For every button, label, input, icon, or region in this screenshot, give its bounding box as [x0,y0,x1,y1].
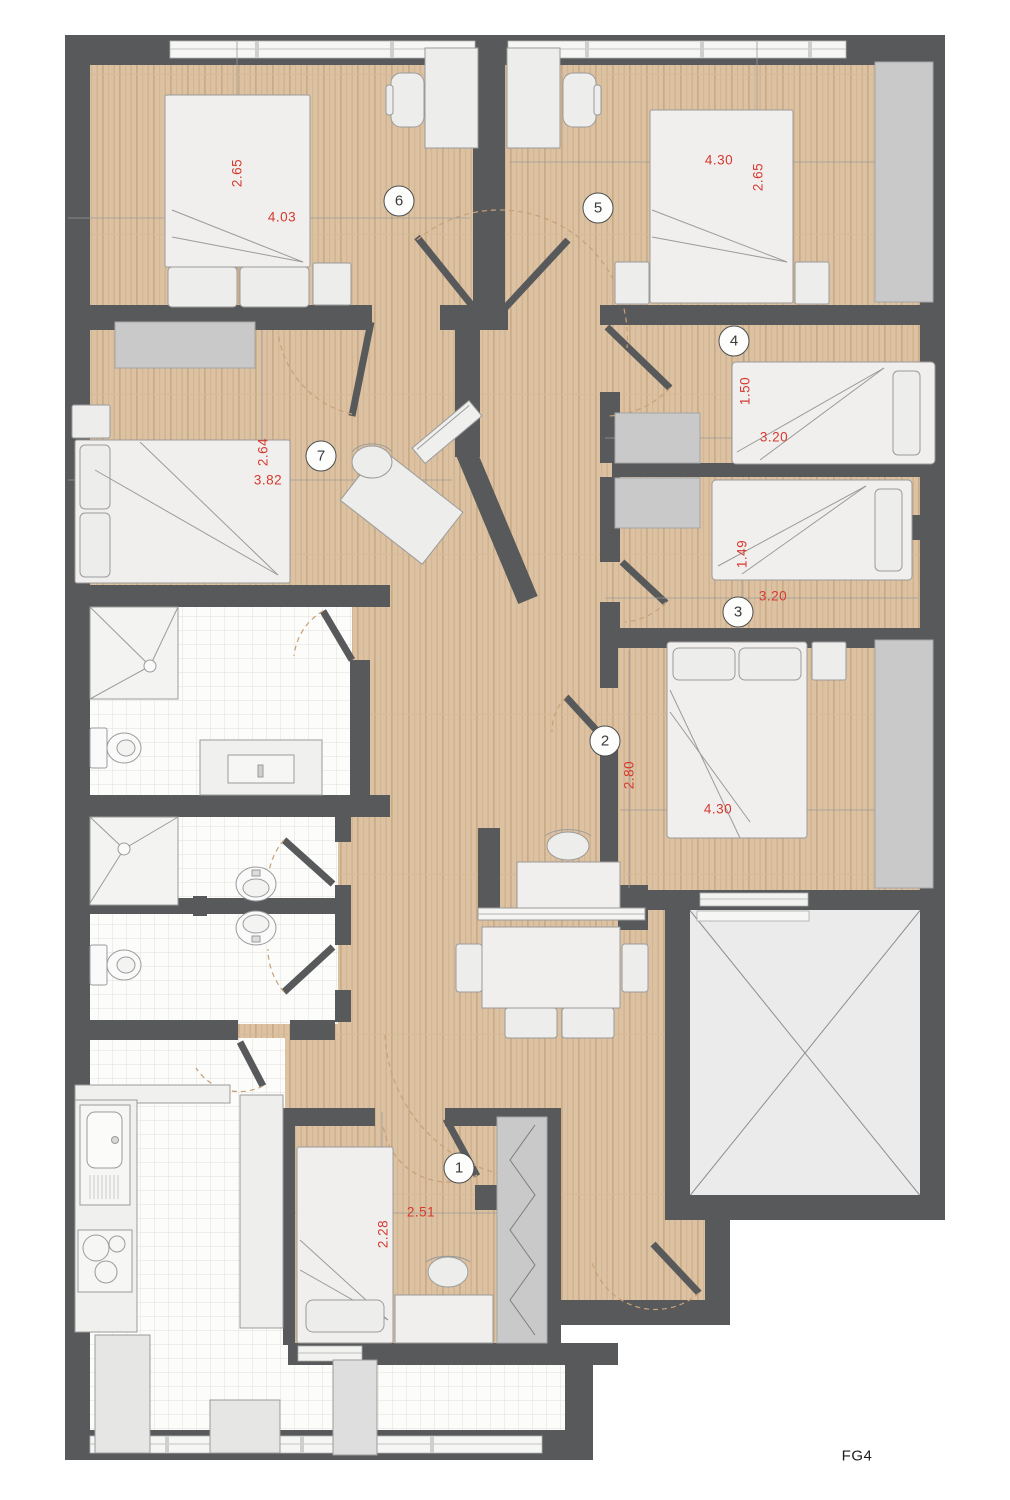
dim-room5-width: 2.65 [751,163,766,191]
terrace-block-3 [210,1400,280,1453]
wardrobe-room1 [497,1117,547,1343]
bed-room4 [732,362,935,464]
dim-room6-length: 4.03 [268,210,296,225]
void-area [688,908,922,1198]
room-marker-4: 4 [719,326,750,357]
kitchen-stove [78,1230,132,1292]
dim-room4-width: 1.50 [738,377,753,405]
dim-room3-length: 3.20 [759,589,787,604]
dim-room3-width: 1.49 [735,540,750,568]
shower-bath1 [90,607,178,699]
dim-room2-length: 4.30 [704,802,732,817]
kitchen-column [240,1095,283,1328]
terrace-block-1 [95,1335,150,1453]
dim-room7-width: 2.64 [256,438,271,466]
dim-room5-length: 4.30 [705,153,733,168]
shower-bath2 [90,817,178,905]
terrace-block-2 [333,1360,377,1455]
dim-room1-width: 2.28 [376,1220,391,1248]
wardrobe-room7 [115,322,255,368]
dim-room7-length: 3.82 [254,473,282,488]
kitchen-sink [80,1105,130,1205]
floor-plan-page: 6 5 4 7 3 2 1 2.65 4.03 4.30 2.65 1.50 3… [0,0,1010,1500]
dim-room2-width: 2.80 [622,761,637,789]
room-marker-1: 1 [444,1153,475,1184]
dim-room4-length: 3.20 [760,430,788,445]
plan-identifier: FG4 [842,1448,873,1465]
room-marker-5: 5 [583,193,614,224]
room-marker-2: 2 [590,726,621,757]
dim-room1-length: 2.51 [407,1205,435,1220]
room-marker-6: 6 [384,186,415,217]
sink-bath2 [236,867,276,901]
wardrobe-room3 [615,478,700,528]
wardrobe-room5 [875,62,933,302]
floor-plan-drawing [0,0,1010,1500]
room-marker-7: 7 [306,441,337,472]
sink-counter-bath1 [200,740,322,795]
wardrobe-room2 [875,640,933,888]
dim-room6-width: 2.65 [230,159,245,187]
sink-wc [236,911,276,945]
room-marker-3: 3 [723,597,754,628]
wardrobe-room4 [615,413,700,463]
